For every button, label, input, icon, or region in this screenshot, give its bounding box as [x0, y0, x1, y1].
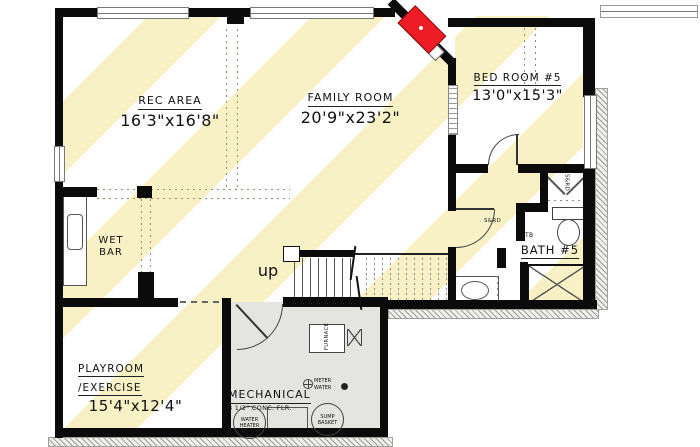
wall-right-lower-block — [380, 300, 388, 436]
wall-hall-lower — [448, 247, 456, 303]
stair-treads — [294, 258, 354, 300]
wall-playroom-right — [222, 298, 231, 437]
rec-area-dims: 16'3"x16'8" — [105, 112, 235, 130]
bedroom5-name: BED ROOM #5 — [474, 72, 562, 86]
wall-shower-left — [520, 262, 528, 304]
water-meter-line1: METER — [314, 378, 331, 385]
wall-closet-left — [540, 164, 548, 208]
soffit-line-open-1 — [97, 189, 290, 190]
rec-area-label: REC AREA 16'3"x16'8" — [105, 90, 235, 130]
playroom-label: PLAYROOM /EXERCISE 15'4"x12'4" — [78, 358, 193, 415]
fireplace-dot-icon — [419, 26, 423, 30]
bedroom5-dims: 13'0"x15'3" — [455, 88, 580, 105]
water-meter-dot-icon — [341, 383, 348, 390]
soffit-line-wetbar-1 — [141, 198, 142, 273]
window-well-top-right — [600, 5, 698, 18]
family-room-name: FAMILY ROOM — [308, 92, 394, 107]
wall-wetbar-pier-top — [137, 186, 152, 198]
family-room-dims: 20'9"x23'2" — [283, 109, 418, 127]
wall-right-upper — [583, 18, 595, 97]
rec-area-name: REC AREA — [138, 95, 201, 110]
wall-top-pier — [227, 8, 244, 24]
wet-bar-sink — [67, 214, 83, 250]
furnace: FURNACE — [309, 324, 345, 353]
wet-bar-line1: WET — [88, 235, 134, 247]
mechanical-label: MECHANICAL 3 1/2" CONC. FLR. — [228, 384, 308, 412]
up-text: up — [258, 261, 278, 280]
bath5-label: TB BATH #5 — [505, 233, 595, 259]
closet-shelf-label-horizontal: S&RD — [484, 218, 501, 224]
bath5-name: BATH #5 — [521, 244, 579, 259]
bedroom5-label: BED ROOM #5 13'0"x15'3" — [455, 67, 580, 105]
wall-bottom-right-block — [388, 300, 597, 309]
bedroom-door-leaf — [516, 134, 518, 165]
wall-hall-upper — [448, 166, 456, 211]
shower — [527, 264, 587, 305]
soffit-line-open-2 — [97, 198, 290, 199]
hatch-bottom-right — [388, 309, 599, 319]
window-bedroom-right — [584, 95, 597, 169]
bath-sink — [461, 281, 489, 300]
wet-bar-label: WET BAR — [88, 235, 134, 258]
water-meter-line2: WATER — [314, 385, 331, 392]
soffit-line-wetbar-2 — [150, 198, 151, 273]
playroom-line1: PLAYROOM — [78, 363, 144, 377]
water-meter-label: METER WATER — [314, 378, 331, 392]
soffit-line-rec-2 — [237, 25, 238, 187]
window-left — [54, 146, 65, 182]
hatch-bottom-left — [48, 437, 393, 447]
mechanical-floor-note: 3 1/2" CONC. FLR. — [228, 405, 308, 412]
water-heater-line2: HEATER — [240, 423, 260, 429]
playroom-dims: 15'4"x12'4" — [78, 398, 193, 415]
vanity-edge-dotted — [497, 276, 498, 302]
wall-playroom-top — [55, 298, 178, 307]
stair-newel — [283, 246, 300, 262]
stair-treads-dotted — [366, 258, 450, 300]
wall-top-bedroom — [448, 18, 595, 27]
bath5-prefix: TB — [525, 233, 595, 240]
hall-door-leaf — [456, 208, 494, 210]
closet-shelf-label-vertical: S&RD — [563, 174, 569, 191]
furnace-label: FURNACE — [324, 325, 330, 350]
up-label: up — [248, 262, 288, 280]
furnace-valve-icon — [347, 329, 362, 346]
closet-shelf-horizontal-text: S&RD — [484, 218, 501, 224]
playroom-door-opening — [180, 301, 226, 303]
stair-rail-line — [354, 253, 452, 255]
wet-bar-line2: BAR — [88, 247, 134, 259]
closet-shelf-vertical-text: S&RD — [563, 174, 569, 191]
mechanical-name: MECHANICAL — [228, 389, 311, 404]
family-room-label: FAMILY ROOM 20'9"x23'2" — [283, 87, 418, 127]
sump-basket: SUMP BASKET — [311, 403, 344, 436]
wall-left — [55, 8, 63, 438]
wall-mechanical-top — [283, 297, 388, 307]
window-top-2 — [250, 7, 374, 19]
sump-line2: BASKET — [318, 420, 338, 426]
playroom-line2: /EXERCISE — [78, 382, 142, 396]
wall-wetbar-top — [55, 187, 97, 197]
window-top-1 — [97, 7, 189, 19]
closet-shelf-line — [548, 200, 583, 201]
floor-plan: FURNACE METER WATER WATER HEATER SUMP BA… — [0, 0, 700, 447]
